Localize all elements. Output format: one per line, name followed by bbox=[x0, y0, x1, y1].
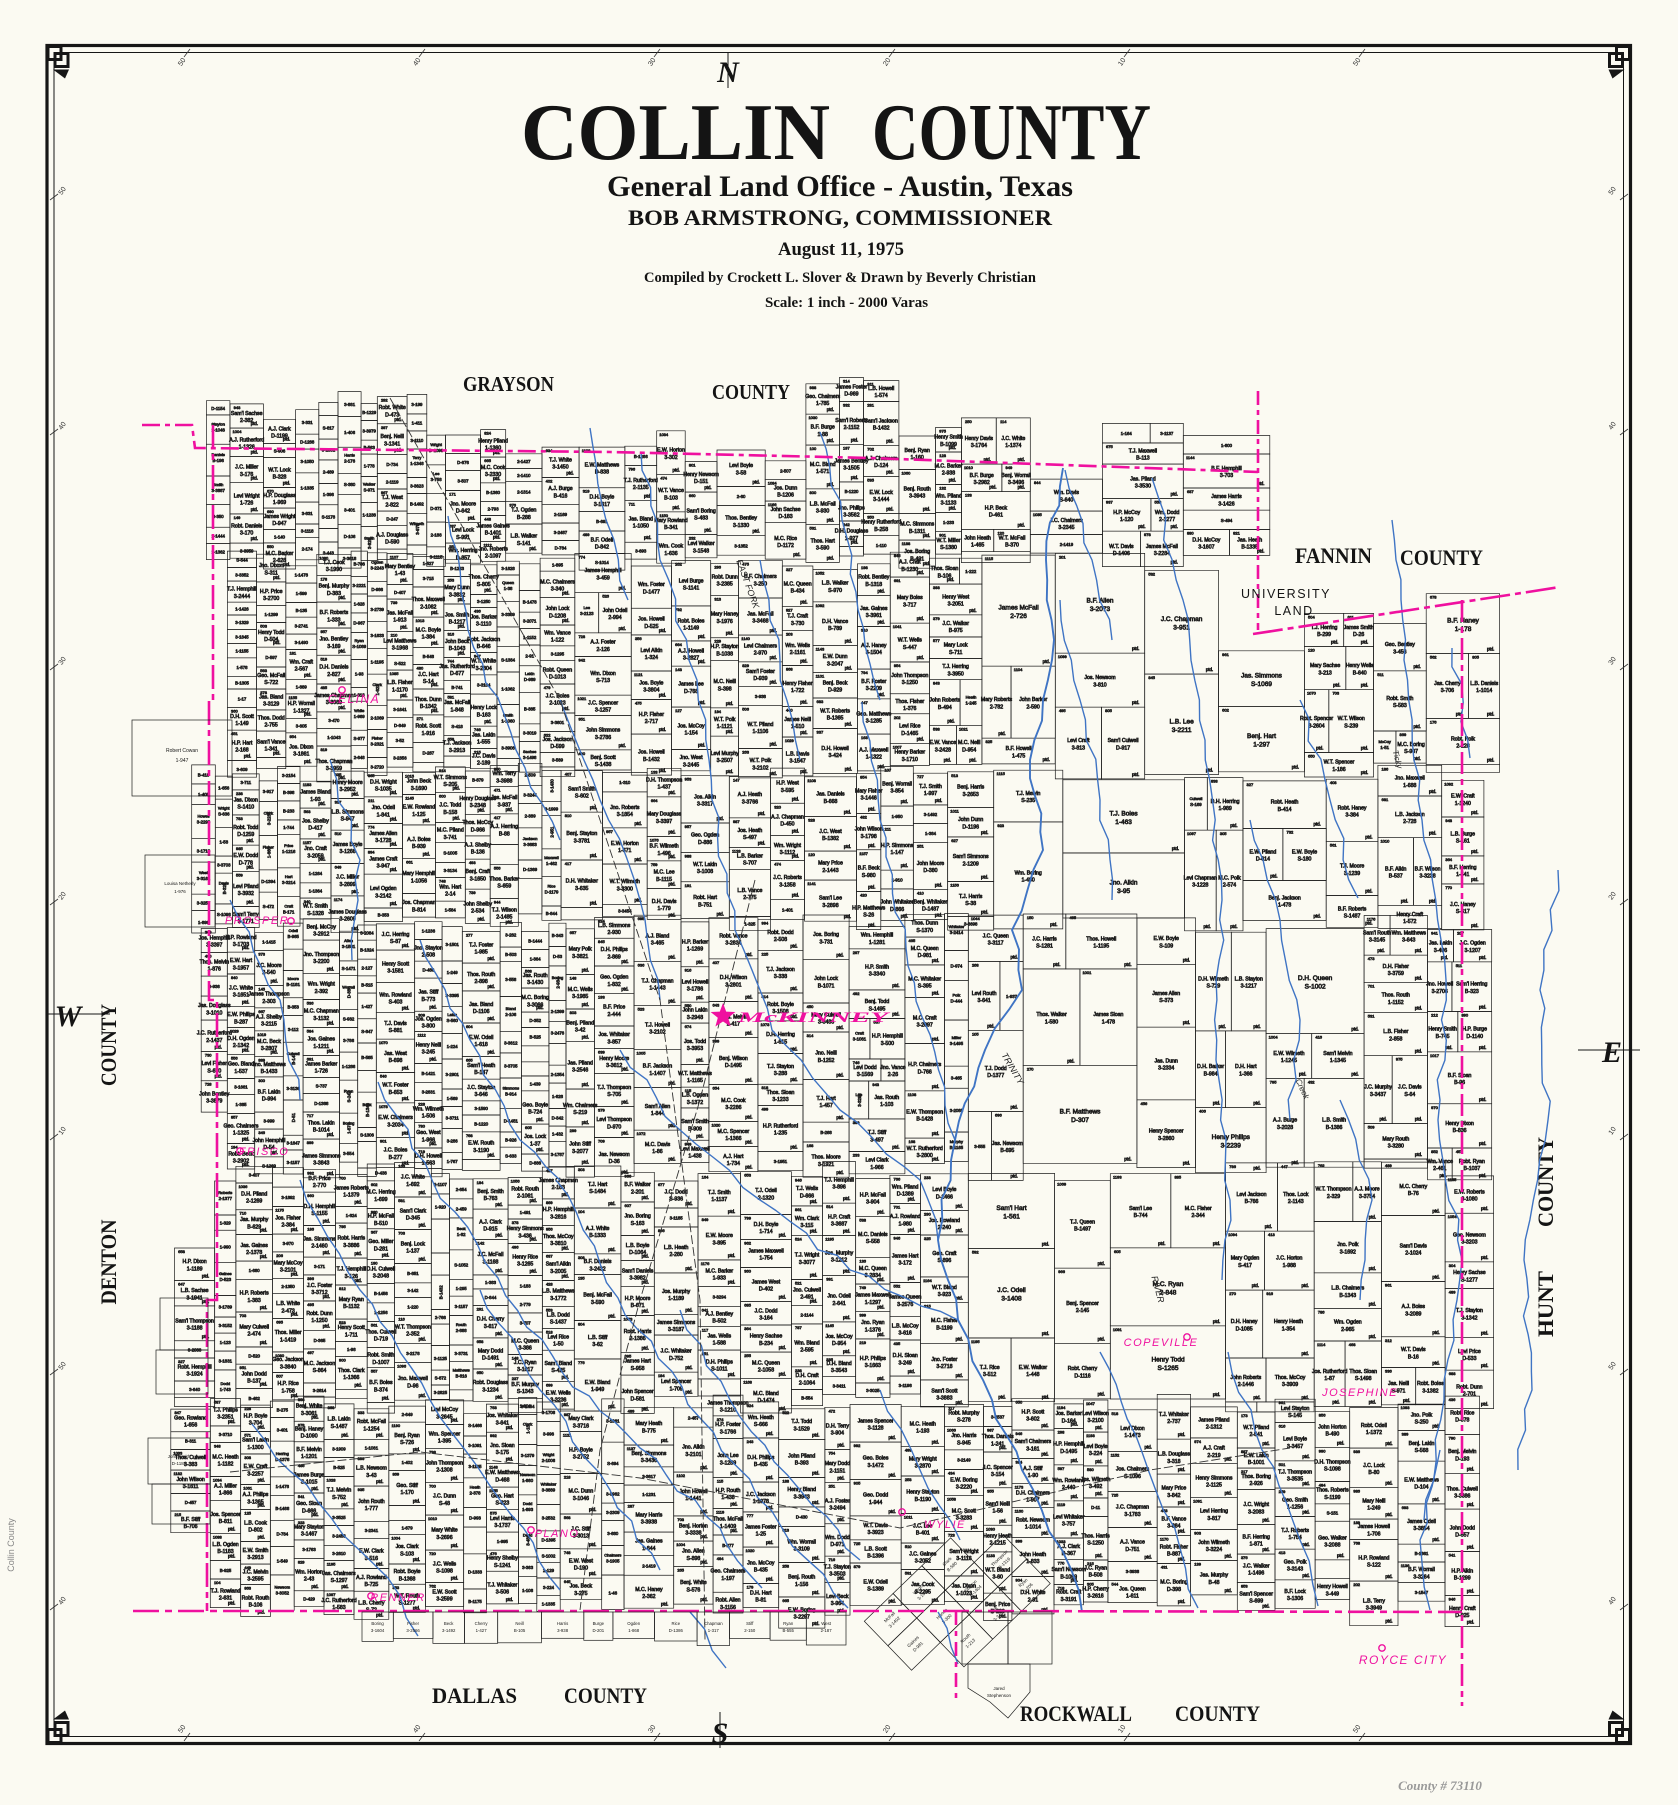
svg-text:ptd.: ptd. bbox=[413, 1605, 420, 1610]
svg-text:762: 762 bbox=[1318, 1163, 1325, 1168]
svg-text:S-151: S-151 bbox=[1327, 1511, 1339, 1516]
svg-text:1021: 1021 bbox=[959, 727, 969, 732]
svg-text:ptd.: ptd. bbox=[402, 1066, 409, 1071]
svg-text:Benj. Piland: Benj. Piland bbox=[566, 1020, 594, 1026]
svg-text:ptd.: ptd. bbox=[1230, 823, 1237, 828]
svg-text:3-386: 3-386 bbox=[519, 1346, 532, 1352]
svg-text:ptd.: ptd. bbox=[886, 438, 893, 443]
svg-text:ptd.: ptd. bbox=[495, 1202, 502, 1207]
svg-text:2-1350: 2-1350 bbox=[281, 1284, 295, 1289]
svg-text:Jno. Culwell: Jno. Culwell bbox=[793, 1287, 821, 1293]
svg-text:ptd.: ptd. bbox=[1145, 1521, 1152, 1526]
svg-text:B-393: B-393 bbox=[795, 1461, 809, 1467]
svg-text:3-2414: 3-2414 bbox=[950, 930, 964, 935]
svg-text:1092: 1092 bbox=[815, 603, 825, 608]
svg-text:Benj. Routh: Benj. Routh bbox=[904, 486, 931, 492]
svg-text:L.B. Sachse: L.B. Sachse bbox=[181, 1288, 209, 1294]
svg-text:ptd.: ptd. bbox=[999, 1481, 1006, 1486]
svg-text:ptd.: ptd. bbox=[1262, 1603, 1269, 1608]
svg-text:ptd.: ptd. bbox=[1183, 1020, 1190, 1025]
svg-text:B-926: B-926 bbox=[505, 1138, 517, 1143]
svg-text:3-3224: 3-3224 bbox=[1206, 1547, 1222, 1553]
svg-text:1092: 1092 bbox=[1444, 781, 1454, 786]
svg-text:B-1432: B-1432 bbox=[643, 757, 660, 763]
svg-text:2-1446: 2-1446 bbox=[1238, 1382, 1254, 1388]
svg-text:ptd.: ptd. bbox=[338, 648, 345, 653]
svg-text:James Allen: James Allen bbox=[1152, 991, 1180, 997]
svg-text:Davis: Davis bbox=[219, 881, 229, 886]
svg-text:1-1407: 1-1407 bbox=[649, 1071, 665, 1077]
svg-text:M.C. Boyle: M.C. Boyle bbox=[416, 627, 441, 633]
svg-text:2-508: 2-508 bbox=[422, 953, 435, 959]
svg-text:ptd.: ptd. bbox=[659, 628, 666, 633]
svg-text:S-947: S-947 bbox=[341, 817, 355, 823]
svg-text:2-1209: 2-1209 bbox=[963, 861, 979, 867]
svg-text:3-1342: 3-1342 bbox=[1461, 1315, 1477, 1321]
svg-text:Jas. Gaines: Jas. Gaines bbox=[860, 606, 888, 612]
svg-text:337: 337 bbox=[817, 730, 824, 735]
svg-text:B-1038: B-1038 bbox=[716, 651, 733, 657]
svg-text:ptd.: ptd. bbox=[1011, 1105, 1018, 1110]
svg-text:S-726: S-726 bbox=[400, 1440, 414, 1446]
svg-text:535: 535 bbox=[867, 477, 874, 482]
svg-text:ptd.: ptd. bbox=[661, 1438, 668, 1443]
svg-text:E.W. Philips: E.W. Philips bbox=[227, 1012, 255, 1018]
svg-text:1-87: 1-87 bbox=[1324, 1376, 1334, 1382]
svg-text:B-1324: B-1324 bbox=[360, 948, 374, 953]
svg-text:436: 436 bbox=[1449, 1397, 1456, 1402]
svg-text:961: 961 bbox=[1279, 1400, 1286, 1405]
svg-text:3-142: 3-142 bbox=[407, 1288, 419, 1293]
svg-text:L.B. Newsom: L.B. Newsom bbox=[356, 1466, 387, 1472]
svg-text:717: 717 bbox=[307, 1113, 314, 1118]
svg-text:D-1388: D-1388 bbox=[314, 1101, 329, 1106]
svg-text:H.P. Burge: H.P. Burge bbox=[1462, 1027, 1487, 1033]
svg-text:S-1471: S-1471 bbox=[342, 966, 356, 971]
svg-text:946: 946 bbox=[795, 1177, 802, 1182]
svg-text:2-898: 2-898 bbox=[475, 979, 488, 985]
svg-text:ptd.: ptd. bbox=[685, 1266, 692, 1271]
svg-text:ptd.: ptd. bbox=[753, 479, 760, 484]
svg-text:E.W. Boring: E.W. Boring bbox=[950, 1477, 978, 1483]
svg-text:M.C. Rice: M.C. Rice bbox=[774, 536, 797, 542]
svg-text:Geo. Chalmers: Geo. Chalmers bbox=[224, 1124, 259, 1130]
svg-text:2-1069: 2-1069 bbox=[371, 715, 385, 720]
svg-text:3-465: 3-465 bbox=[651, 941, 664, 947]
svg-text:1-679: 1-679 bbox=[402, 1525, 414, 1530]
svg-text:B-1132: B-1132 bbox=[343, 1304, 359, 1310]
svg-text:ptd.: ptd. bbox=[1253, 1166, 1260, 1171]
svg-text:J.C. Roberts: J.C. Roberts bbox=[773, 875, 802, 881]
svg-text:Jas. Dunn: Jas. Dunn bbox=[1155, 1059, 1178, 1065]
svg-text:B-1386: B-1386 bbox=[1326, 1125, 1343, 1131]
svg-text:563: 563 bbox=[304, 809, 311, 814]
svg-text:Hart: Hart bbox=[285, 874, 293, 879]
svg-text:943: 943 bbox=[234, 405, 241, 410]
svg-text:2-1269: 2-1269 bbox=[246, 1199, 262, 1205]
svg-text:ptd.: ptd. bbox=[1369, 1266, 1376, 1271]
svg-text:1-427: 1-427 bbox=[362, 1004, 374, 1009]
svg-text:B-508: B-508 bbox=[1089, 1573, 1103, 1579]
svg-text:D-1116: D-1116 bbox=[1074, 1373, 1090, 1379]
svg-text:D.H. Philips: D.H. Philips bbox=[706, 1360, 734, 1366]
svg-text:ptd.: ptd. bbox=[390, 817, 397, 822]
svg-text:A.J. Maxwell: A.J. Maxwell bbox=[859, 748, 888, 754]
svg-text:975: 975 bbox=[939, 428, 946, 433]
svg-text:Robt. Boyle: Robt. Boyle bbox=[394, 1569, 421, 1575]
svg-text:Jos. Jackson: Jos. Jackson bbox=[543, 737, 573, 743]
svg-text:Levi Ogden: Levi Ogden bbox=[370, 886, 397, 892]
svg-text:ptd.: ptd. bbox=[728, 1209, 735, 1214]
svg-text:D-365: D-365 bbox=[314, 1338, 326, 1343]
svg-text:759: 759 bbox=[651, 862, 658, 867]
svg-text:3-249: 3-249 bbox=[899, 1360, 912, 1366]
svg-text:Heath: Heath bbox=[470, 1485, 481, 1490]
svg-text:S-1098: S-1098 bbox=[436, 1569, 453, 1575]
svg-text:605: 605 bbox=[525, 1125, 532, 1130]
svg-text:2-770: 2-770 bbox=[313, 1183, 326, 1189]
svg-text:1-848: 1-848 bbox=[450, 707, 463, 713]
svg-text:ptd.: ptd. bbox=[836, 1115, 843, 1120]
svg-text:Jos. Boring: Jos. Boring bbox=[813, 932, 839, 938]
svg-text:Roberts: Roberts bbox=[218, 1190, 232, 1195]
svg-text:A.J. Bland: A.J. Bland bbox=[646, 933, 670, 939]
svg-text:Henry Todd: Henry Todd bbox=[258, 630, 285, 636]
svg-text:3-2616: 3-2616 bbox=[1088, 1594, 1104, 1600]
svg-text:ptd.: ptd. bbox=[851, 438, 858, 443]
svg-text:2-965: 2-965 bbox=[1341, 1327, 1354, 1333]
svg-text:2-389: 2-389 bbox=[525, 814, 537, 819]
svg-text:1195: 1195 bbox=[971, 1339, 980, 1344]
svg-text:181: 181 bbox=[289, 651, 296, 656]
svg-text:ptd.: ptd. bbox=[1213, 1392, 1220, 1397]
svg-text:2-91: 2-91 bbox=[525, 653, 534, 658]
svg-text:ptd.: ptd. bbox=[1415, 1117, 1422, 1122]
svg-text:3-741: 3-741 bbox=[444, 835, 457, 841]
svg-text:3-555: 3-555 bbox=[974, 1144, 986, 1149]
svg-text:398: 398 bbox=[298, 1397, 305, 1402]
svg-text:Jno. Stayton: Jno. Stayton bbox=[414, 945, 443, 951]
svg-text:416: 416 bbox=[1315, 1035, 1322, 1040]
svg-text:D-849: D-849 bbox=[394, 723, 406, 728]
svg-text:W.T. McFall: W.T. McFall bbox=[999, 536, 1026, 542]
svg-text:Benj. Hart: Benj. Hart bbox=[1247, 733, 1276, 740]
svg-text:3-43: 3-43 bbox=[366, 1473, 376, 1479]
svg-text:675: 675 bbox=[1106, 444, 1113, 449]
svg-text:B-1165: B-1165 bbox=[950, 1145, 964, 1150]
svg-text:Geo. Hart: Geo. Hart bbox=[491, 1493, 514, 1499]
svg-text:1-889: 1-889 bbox=[296, 685, 308, 690]
svg-text:Thos. McCoy: Thos. McCoy bbox=[543, 1234, 574, 1240]
svg-text:1168: 1168 bbox=[743, 1380, 752, 1385]
svg-text:2-1097: 2-1097 bbox=[485, 554, 501, 560]
svg-text:D-597: D-597 bbox=[265, 655, 277, 660]
svg-text:561: 561 bbox=[371, 1322, 378, 1327]
svg-text:D-444: D-444 bbox=[951, 998, 963, 1003]
svg-text:164: 164 bbox=[702, 1175, 709, 1180]
svg-text:519: 519 bbox=[320, 656, 327, 661]
svg-text:1-235: 1-235 bbox=[774, 1131, 787, 1137]
svg-text:Benj. Spencer: Benj. Spencer bbox=[1066, 1301, 1099, 1307]
svg-text:658: 658 bbox=[178, 1249, 185, 1254]
svg-text:ptd.: ptd. bbox=[730, 1471, 737, 1476]
svg-text:3-1110: 3-1110 bbox=[411, 438, 424, 443]
svg-text:2-755: 2-755 bbox=[265, 723, 278, 729]
svg-text:1-46: 1-46 bbox=[608, 1590, 617, 1595]
svg-text:Jas. Daniels: Jas. Daniels bbox=[816, 792, 845, 798]
svg-text:Wm. Chalmers: Wm. Chalmers bbox=[563, 1103, 598, 1109]
svg-text:Wm. Terry: Wm. Terry bbox=[493, 771, 517, 777]
svg-text:ptd.: ptd. bbox=[989, 485, 996, 490]
svg-text:ptd.: ptd. bbox=[1365, 835, 1372, 840]
svg-text:ptd.: ptd. bbox=[608, 1247, 615, 1252]
svg-text:1148: 1148 bbox=[489, 1464, 498, 1469]
svg-text:Henry Scott: Henry Scott bbox=[382, 961, 410, 967]
svg-text:3-1787: 3-1787 bbox=[551, 1152, 565, 1157]
svg-text:S-980: S-980 bbox=[862, 873, 876, 879]
svg-text:1194: 1194 bbox=[1057, 1405, 1066, 1410]
svg-text:746: 746 bbox=[853, 1060, 860, 1065]
svg-text:186: 186 bbox=[1382, 766, 1389, 771]
svg-text:312: 312 bbox=[1385, 1338, 1392, 1343]
svg-text:1019: 1019 bbox=[257, 1032, 267, 1037]
svg-text:D-520: D-520 bbox=[248, 1354, 260, 1359]
svg-text:ptd.: ptd. bbox=[1471, 849, 1478, 854]
svg-text:Jas. Newsom: Jas. Newsom bbox=[599, 1152, 630, 1158]
svg-text:3-595: 3-595 bbox=[781, 788, 794, 794]
svg-text:1-401: 1-401 bbox=[782, 908, 794, 913]
svg-text:518: 518 bbox=[546, 1329, 553, 1334]
svg-text:Wm. Dixon: Wm. Dixon bbox=[590, 671, 615, 677]
svg-text:ptd.: ptd. bbox=[1252, 1283, 1259, 1288]
svg-text:Thos. Dodd: Thos. Dodd bbox=[258, 716, 285, 722]
svg-text:S-64: S-64 bbox=[1404, 1092, 1415, 1098]
svg-text:Geo. Bentley: Geo. Bentley bbox=[1385, 642, 1415, 648]
svg-text:M.C. Boring: M.C. Boring bbox=[522, 995, 550, 1001]
svg-text:J.C. Queen: J.C. Queen bbox=[983, 933, 1009, 939]
svg-text:744: 744 bbox=[447, 658, 454, 663]
svg-text:D.H. Herring: D.H. Herring bbox=[1211, 799, 1240, 805]
svg-text:526: 526 bbox=[602, 594, 609, 599]
svg-text:3-1845: 3-1845 bbox=[235, 634, 249, 639]
svg-text:1-611: 1-611 bbox=[1126, 1594, 1139, 1600]
svg-text:ptd.: ptd. bbox=[478, 916, 485, 921]
svg-text:510: 510 bbox=[335, 831, 342, 836]
svg-text:1-140: 1-140 bbox=[274, 534, 286, 539]
svg-text:T.J. Hart: T.J. Hart bbox=[816, 1096, 836, 1102]
svg-text:3-3457: 3-3457 bbox=[1287, 1444, 1303, 1450]
svg-text:B-502: B-502 bbox=[712, 1319, 726, 1325]
svg-text:228: 228 bbox=[418, 1102, 425, 1107]
svg-text:ptd.: ptd. bbox=[668, 955, 675, 960]
svg-text:149: 149 bbox=[234, 515, 241, 520]
svg-text:703: 703 bbox=[240, 1313, 247, 1318]
svg-text:J.C. Ogden: J.C. Ogden bbox=[1459, 941, 1485, 947]
svg-text:ptd.: ptd. bbox=[260, 1340, 267, 1345]
svg-text:1107: 1107 bbox=[390, 555, 399, 560]
svg-text:D.H. Craft: D.H. Craft bbox=[795, 1373, 819, 1379]
svg-text:T.J. Todd: T.J. Todd bbox=[791, 1419, 812, 1425]
svg-text:Geo. Matthews: Geo. Matthews bbox=[856, 711, 891, 717]
svg-text:ptd.: ptd. bbox=[1225, 1553, 1232, 1558]
svg-text:T.J. Whitaker: T.J. Whitaker bbox=[487, 1583, 517, 1589]
svg-text:B-646: B-646 bbox=[477, 644, 491, 650]
svg-text:COUNTY: COUNTY bbox=[872, 89, 1151, 177]
svg-text:ptd.: ptd. bbox=[394, 417, 401, 422]
svg-text:Thos. Routh: Thos. Routh bbox=[467, 972, 495, 978]
svg-text:1-1443: 1-1443 bbox=[649, 986, 665, 992]
svg-text:ptd.: ptd. bbox=[642, 1345, 649, 1350]
svg-text:899: 899 bbox=[358, 1456, 365, 1461]
svg-text:B-435: B-435 bbox=[754, 1462, 768, 1468]
svg-text:468: 468 bbox=[1349, 1342, 1356, 1347]
svg-text:3-2047: 3-2047 bbox=[827, 661, 843, 667]
svg-text:ptd.: ptd. bbox=[562, 1246, 569, 1251]
svg-text:M.C. Bland: M.C. Bland bbox=[810, 462, 836, 468]
svg-text:1-480: 1-480 bbox=[1022, 878, 1035, 884]
svg-text:ptd.: ptd. bbox=[810, 1229, 817, 1234]
svg-text:1-325: 1-325 bbox=[744, 921, 756, 926]
svg-text:1-734: 1-734 bbox=[727, 1161, 740, 1167]
svg-text:523: 523 bbox=[638, 1006, 645, 1011]
svg-text:3-1651: 3-1651 bbox=[233, 993, 249, 999]
svg-text:3-2178: 3-2178 bbox=[406, 1351, 420, 1356]
svg-text:S-1096: S-1096 bbox=[1124, 1474, 1141, 1480]
svg-text:1-384: 1-384 bbox=[925, 831, 937, 836]
svg-text:484: 484 bbox=[717, 1556, 724, 1561]
svg-text:397: 397 bbox=[381, 425, 388, 430]
svg-text:M.C. Simmons: M.C. Simmons bbox=[900, 522, 934, 528]
svg-text:ptd.: ptd. bbox=[766, 1431, 773, 1436]
svg-text:Levi Harris: Levi Harris bbox=[490, 1516, 515, 1522]
svg-text:3-3988: 3-3988 bbox=[496, 778, 512, 784]
svg-text:ptd.: ptd. bbox=[273, 575, 280, 580]
svg-text:3-1372: 3-1372 bbox=[687, 1100, 703, 1106]
svg-text:ptd.: ptd. bbox=[1145, 1555, 1152, 1560]
svg-text:513: 513 bbox=[951, 773, 958, 778]
svg-text:1004: 1004 bbox=[676, 1542, 686, 1547]
svg-text:1-1281: 1-1281 bbox=[869, 940, 885, 946]
svg-text:Wm. Ogden: Wm. Ogden bbox=[1334, 1320, 1362, 1326]
svg-text:Fisher: Fisher bbox=[263, 845, 275, 850]
svg-text:Jas. Simmons: Jas. Simmons bbox=[1241, 673, 1283, 680]
svg-text:3-2507: 3-2507 bbox=[717, 758, 733, 764]
svg-text:B-370: B-370 bbox=[1005, 543, 1019, 549]
svg-text:3-3397: 3-3397 bbox=[656, 819, 672, 825]
svg-text:ptd.: ptd. bbox=[402, 943, 409, 948]
svg-text:3-3961: 3-3961 bbox=[866, 613, 882, 619]
svg-text:658: 658 bbox=[477, 1339, 484, 1344]
svg-text:665: 665 bbox=[466, 1058, 473, 1063]
svg-text:1-122: 1-122 bbox=[551, 638, 564, 644]
svg-text:ptd.: ptd. bbox=[1206, 667, 1213, 672]
svg-text:3-363: 3-363 bbox=[522, 1565, 534, 1570]
svg-text:2-508: 2-508 bbox=[774, 937, 787, 943]
svg-text:S-1250: S-1250 bbox=[1087, 1541, 1104, 1547]
svg-text:844: 844 bbox=[1034, 480, 1041, 485]
svg-text:S-576: S-576 bbox=[686, 1587, 700, 1593]
svg-text:ptd.: ptd. bbox=[242, 1000, 249, 1005]
svg-text:Mary Roberts: Mary Roberts bbox=[981, 697, 1013, 703]
svg-text:H.P. Foster: H.P. Foster bbox=[715, 1422, 741, 1428]
svg-text:D-429: D-429 bbox=[303, 1597, 315, 1602]
svg-text:1152: 1152 bbox=[1111, 1453, 1120, 1458]
svg-text:3-1628: 3-1628 bbox=[501, 566, 515, 571]
svg-text:3-2445: 3-2445 bbox=[683, 762, 699, 768]
svg-text:Jos. Newsom: Jos. Newsom bbox=[1084, 675, 1115, 681]
svg-text:3-3840: 3-3840 bbox=[280, 1364, 296, 1370]
svg-text:3-3909: 3-3909 bbox=[1282, 1382, 1298, 1388]
svg-text:M.C. Lee: M.C. Lee bbox=[654, 870, 675, 876]
svg-text:Lakin: Lakin bbox=[525, 671, 535, 676]
svg-text:ptd.: ptd. bbox=[1095, 1425, 1102, 1430]
svg-text:ptd.: ptd. bbox=[1316, 745, 1323, 750]
svg-text:3-3143: 3-3143 bbox=[1287, 1567, 1303, 1573]
svg-text:3-938: 3-938 bbox=[755, 694, 767, 699]
svg-text:D-247: D-247 bbox=[386, 516, 398, 521]
svg-text:S-522: S-522 bbox=[394, 661, 406, 666]
svg-text:1157: 1157 bbox=[859, 851, 868, 856]
svg-text:ptd.: ptd. bbox=[283, 562, 290, 567]
svg-text:L.B. Lakin: L.B. Lakin bbox=[327, 1417, 350, 1423]
svg-text:B-1335: B-1335 bbox=[1241, 545, 1258, 551]
svg-text:Jas. Piland: Jas. Piland bbox=[568, 1060, 593, 1066]
svg-text:S-713: S-713 bbox=[596, 678, 610, 684]
svg-text:B-1252: B-1252 bbox=[818, 1058, 835, 1064]
svg-text:ptd.: ptd. bbox=[228, 1526, 235, 1531]
svg-text:852: 852 bbox=[1431, 1149, 1438, 1154]
svg-text:ptd.: ptd. bbox=[1262, 1547, 1269, 1552]
svg-text:3-172: 3-172 bbox=[899, 1261, 912, 1267]
svg-text:Henry Spencer: Henry Spencer bbox=[1149, 1129, 1184, 1135]
svg-text:Levi Thompson: Levi Thompson bbox=[597, 1117, 632, 1123]
svg-text:John Wilson: John Wilson bbox=[176, 1477, 204, 1483]
svg-text:B-494: B-494 bbox=[938, 705, 952, 711]
svg-text:ptd.: ptd. bbox=[1415, 1049, 1422, 1054]
svg-text:456: 456 bbox=[1141, 1101, 1148, 1106]
svg-text:D.H. Fisher: D.H. Fisher bbox=[1383, 964, 1410, 970]
svg-text:COUNTY: COUNTY bbox=[564, 1683, 647, 1708]
svg-text:T.J. Melvin: T.J. Melvin bbox=[327, 1488, 352, 1494]
svg-text:562: 562 bbox=[1430, 654, 1437, 659]
svg-text:Thos. Miller: Thos. Miller bbox=[275, 1330, 302, 1336]
svg-text:S-666: S-666 bbox=[754, 1422, 768, 1428]
svg-text:1-572: 1-572 bbox=[1403, 919, 1416, 925]
svg-text:ptd.: ptd. bbox=[1481, 1363, 1488, 1368]
svg-text:B-724: B-724 bbox=[528, 1110, 542, 1116]
svg-text:James Hemphill: James Hemphill bbox=[585, 568, 622, 574]
svg-text:ptd.: ptd. bbox=[770, 679, 777, 684]
svg-text:Wm. Matthews: Wm. Matthews bbox=[1392, 930, 1427, 936]
svg-text:3-2341: 3-2341 bbox=[365, 1528, 379, 1533]
svg-text:1-86: 1-86 bbox=[652, 1149, 662, 1155]
svg-text:3-1080: 3-1080 bbox=[1461, 1197, 1477, 1203]
svg-text:ptd.: ptd. bbox=[892, 983, 899, 988]
svg-text:Jno. Allen: Jno. Allen bbox=[682, 1549, 705, 1555]
svg-text:D-1085: D-1085 bbox=[1236, 1326, 1253, 1332]
svg-text:ptd.: ptd. bbox=[1332, 1400, 1339, 1405]
svg-text:B-789: B-789 bbox=[828, 626, 842, 632]
svg-text:541: 541 bbox=[298, 1494, 305, 1499]
svg-text:ptd.: ptd. bbox=[1479, 1045, 1486, 1050]
svg-text:ptd.: ptd. bbox=[753, 529, 760, 534]
svg-text:B-548: B-548 bbox=[423, 654, 435, 659]
svg-text:3-1495: 3-1495 bbox=[950, 1041, 964, 1046]
svg-text:3-1831: 3-1831 bbox=[219, 1359, 233, 1364]
svg-text:A.J. Douglass: A.J. Douglass bbox=[376, 532, 408, 538]
svg-text:Benj. Jackson: Benj. Jackson bbox=[1268, 896, 1300, 902]
svg-text:ptd.: ptd. bbox=[845, 766, 852, 771]
